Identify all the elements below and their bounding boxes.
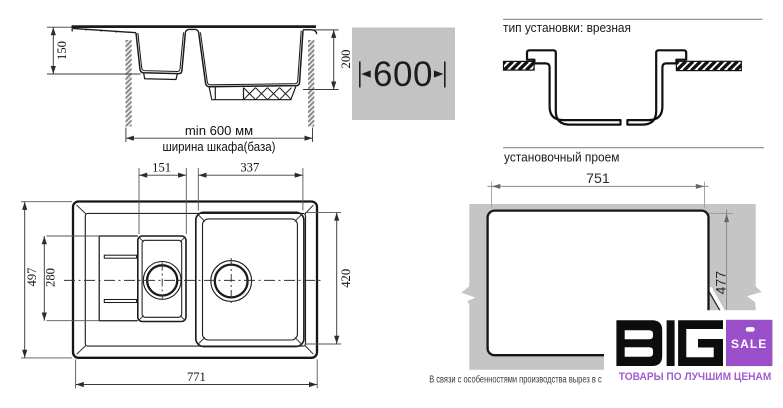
- svg-text:min 600 мм: min 600 мм: [185, 123, 253, 138]
- svg-text:ширина шкафа(база): ширина шкафа(база): [163, 139, 276, 154]
- svg-text:600: 600: [373, 55, 433, 94]
- svg-text:SALE: SALE: [731, 337, 767, 351]
- svg-text:установочный проем: установочный проем: [504, 150, 620, 165]
- svg-text:420: 420: [339, 269, 353, 288]
- svg-text:В связи с особенностями произв: В связи с особенностями производства выр…: [429, 374, 602, 386]
- svg-text:280: 280: [44, 268, 58, 287]
- svg-text:тип установки: врезная: тип установки: врезная: [503, 20, 631, 35]
- svg-text:200: 200: [339, 50, 353, 69]
- svg-text:151: 151: [152, 161, 171, 175]
- svg-text:ТОВАРЫ ПО ЛУЧШИМ ЦЕНАМ: ТОВАРЫ ПО ЛУЧШИМ ЦЕНАМ: [619, 371, 772, 383]
- svg-text:150: 150: [55, 41, 69, 60]
- svg-text:497: 497: [25, 268, 39, 287]
- svg-text:771: 771: [187, 370, 206, 384]
- svg-text:477: 477: [714, 271, 730, 295]
- svg-text:337: 337: [240, 161, 259, 175]
- svg-text:751: 751: [586, 171, 610, 187]
